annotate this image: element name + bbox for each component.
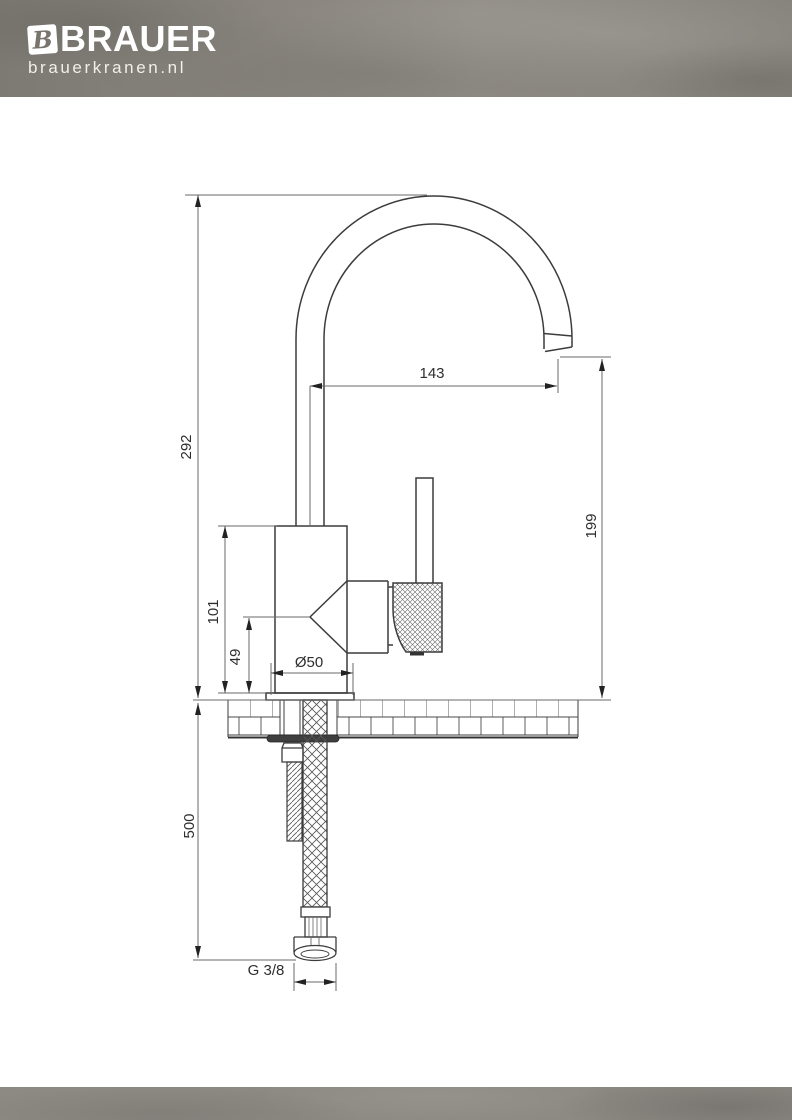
spout-gooseneck <box>296 196 572 526</box>
dim-handle-height: 49 <box>228 635 244 679</box>
faucet-technical-drawing <box>0 97 792 1087</box>
dim-hose-length: 500 <box>182 804 198 848</box>
faucet-body <box>266 526 393 700</box>
faucet-drawing-canvas <box>0 97 792 1087</box>
brand-name: BRAUER <box>60 18 217 60</box>
countertop-section <box>228 700 578 738</box>
dim-outlet-height: 199 <box>584 504 600 548</box>
header-band: B BRAUER brauerkranen.nl <box>0 0 792 97</box>
footer-band <box>0 1087 792 1120</box>
dim-spout-reach: 143 <box>412 366 452 382</box>
page: B BRAUER brauerkranen.nl <box>0 0 792 1120</box>
dim-connection-thread: G 3/8 <box>240 963 292 979</box>
dim-base-diameter: Ø50 <box>289 655 329 671</box>
dim-total-height: 292 <box>179 425 195 469</box>
brand-website: brauerkranen.nl <box>28 58 186 78</box>
brauer-logo-icon: B <box>27 24 58 55</box>
dim-body-height: 101 <box>206 590 222 634</box>
faucet-handle <box>393 478 442 656</box>
